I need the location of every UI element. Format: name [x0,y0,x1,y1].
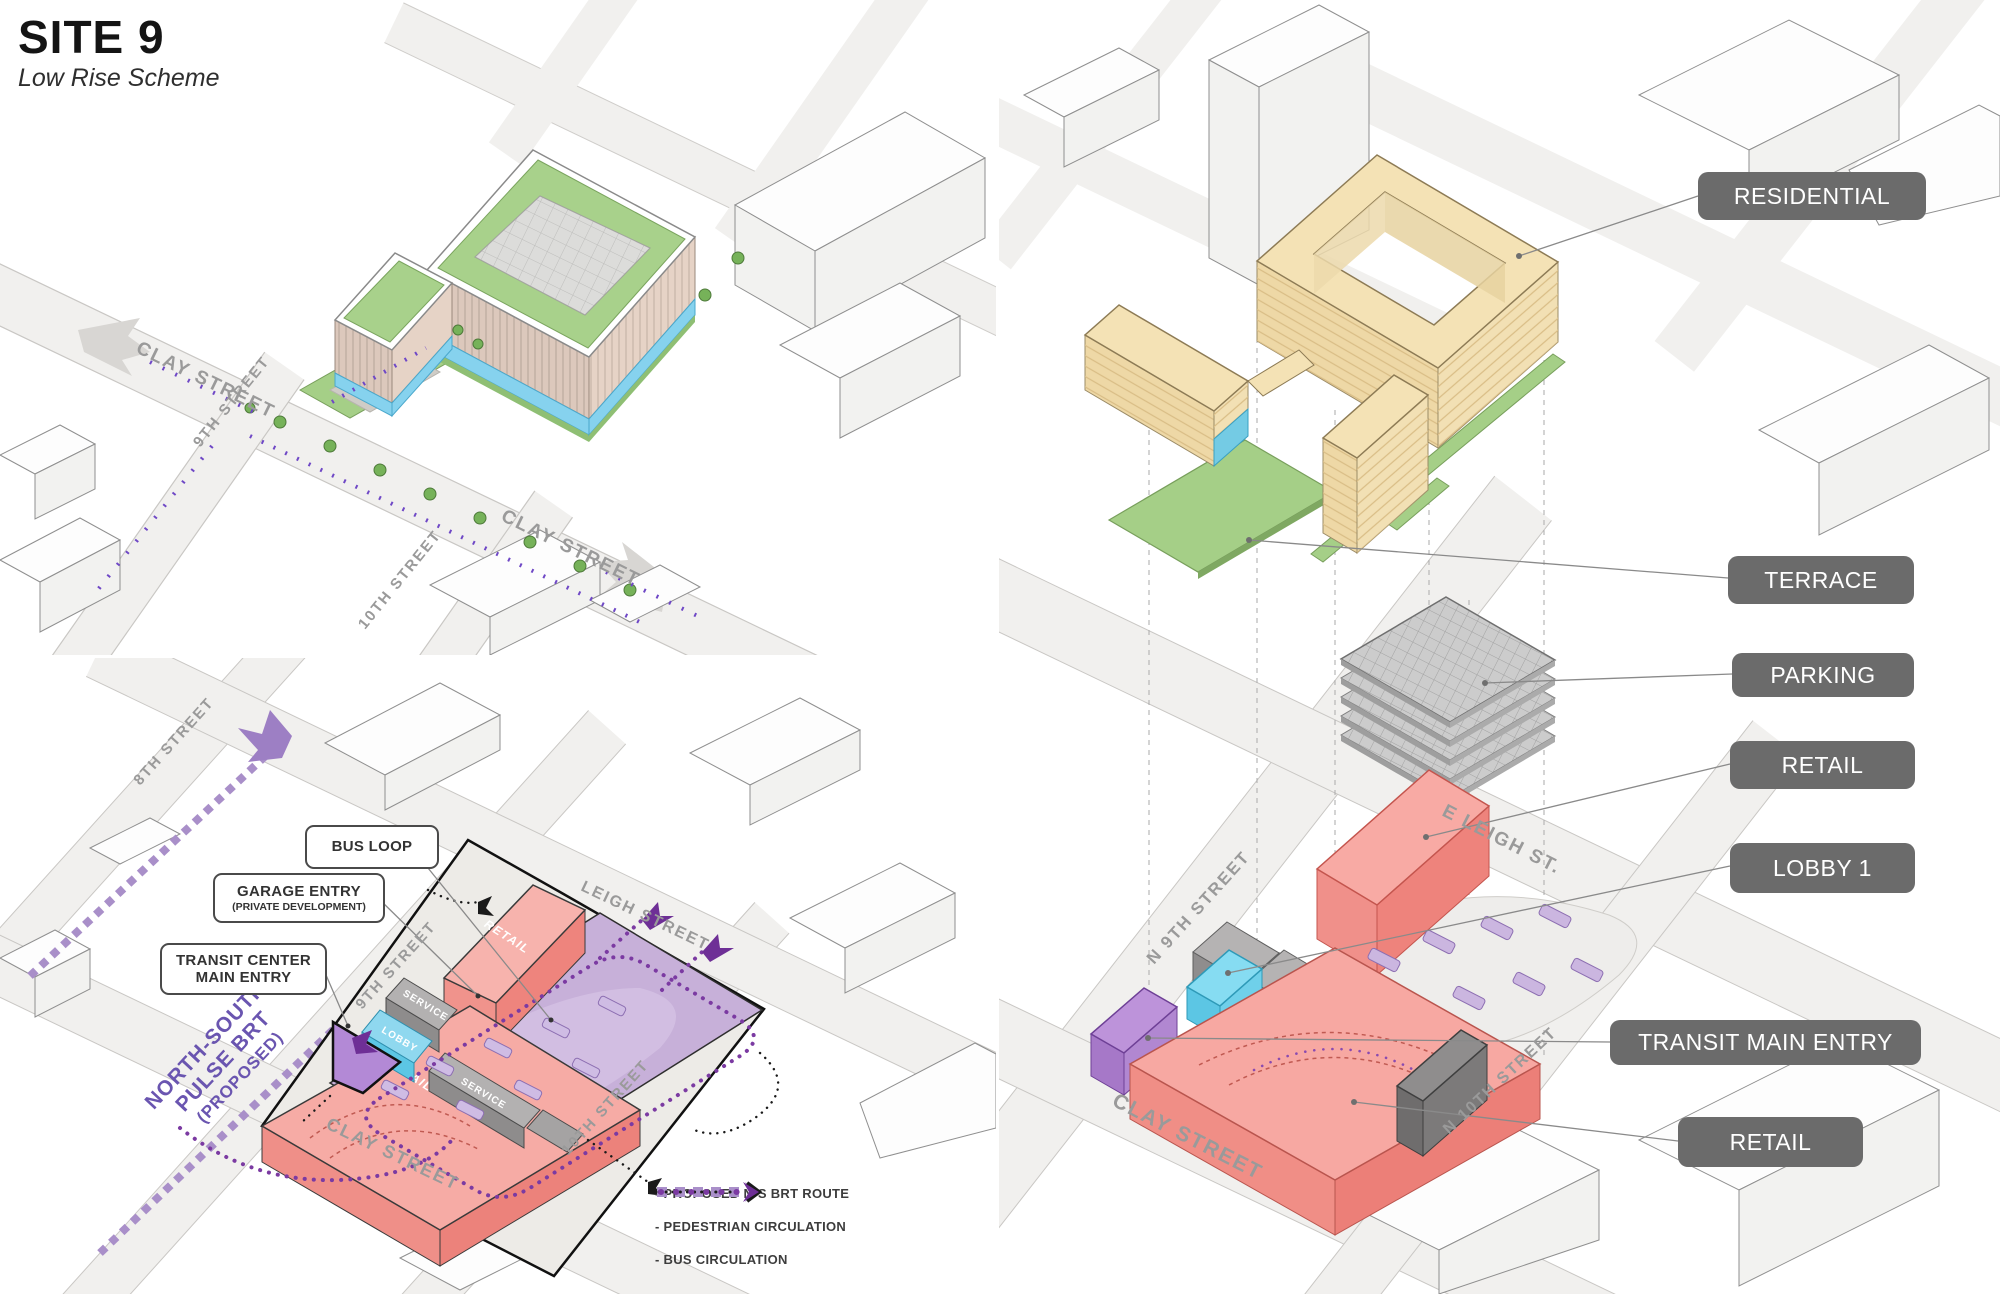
callout-text: GARAGE ENTRY [237,883,361,900]
legend-label: - PEDESTRIAN CIRCULATION [655,1219,846,1234]
callout-bus-loop: BUS LOOP [305,825,439,869]
callout-text: BUS LOOP [332,838,413,855]
panel-divider-horizontal [0,655,996,658]
legend-row-pedestrian: - PEDESTRIAN CIRCULATION [655,1213,849,1239]
bus-circulation-icon [655,1180,773,1204]
callout-text: MAIN ENTRY [196,969,292,986]
pill-text: TRANSIT MAIN ENTRY [1638,1029,1893,1056]
pill-text: RETAIL [1730,1129,1812,1156]
callout-text: TRANSIT CENTER [176,952,311,969]
panel-divider-vertical [996,0,999,1294]
label-pill-retail-lower: RETAIL [1678,1117,1863,1167]
pill-text: TERRACE [1764,567,1877,594]
page-title: SITE 9 [18,14,219,60]
street-label-10th: 10TH STREET [355,527,445,633]
pill-text: LOBBY 1 [1773,855,1872,882]
page-subtitle: Low Rise Scheme [18,64,219,93]
illustrative-axon-drawing: CLAY STREET 9TH STREET CLAY STREET 10TH … [0,0,996,655]
legend-row-bus: - BUS CIRCULATION [655,1246,849,1272]
pill-text: PARKING [1770,662,1875,689]
title-block: SITE 9 Low Rise Scheme [18,14,219,93]
callout-subtext: (PRIVATE DEVELOPMENT) [232,901,366,913]
label-pill-lobby1: LOBBY 1 [1730,843,1915,893]
site9-diagram-sheet: CLAY STREET 9TH STREET CLAY STREET 10TH … [0,0,2000,1294]
callout-garage-entry: GARAGE ENTRY (PRIVATE DEVELOPMENT) [213,873,385,923]
label-pill-retail-upper: RETAIL [1730,741,1915,789]
pill-text: RESIDENTIAL [1734,183,1890,210]
pill-text: RETAIL [1782,752,1864,779]
label-pill-transit-main-entry: TRANSIT MAIN ENTRY [1610,1020,1921,1065]
label-pill-residential: RESIDENTIAL [1698,172,1926,220]
label-pill-terrace: TERRACE [1728,556,1914,604]
panel-illustrative-axon: CLAY STREET 9TH STREET CLAY STREET 10TH … [0,0,998,655]
circulation-legend: - PROPOSED N-S BRT ROUTE - PEDESTRIAN CI… [655,1180,849,1279]
callout-transit-center-main-entry: TRANSIT CENTER MAIN ENTRY [160,943,327,995]
legend-label: - BUS CIRCULATION [655,1252,788,1267]
label-pill-parking: PARKING [1732,653,1914,697]
